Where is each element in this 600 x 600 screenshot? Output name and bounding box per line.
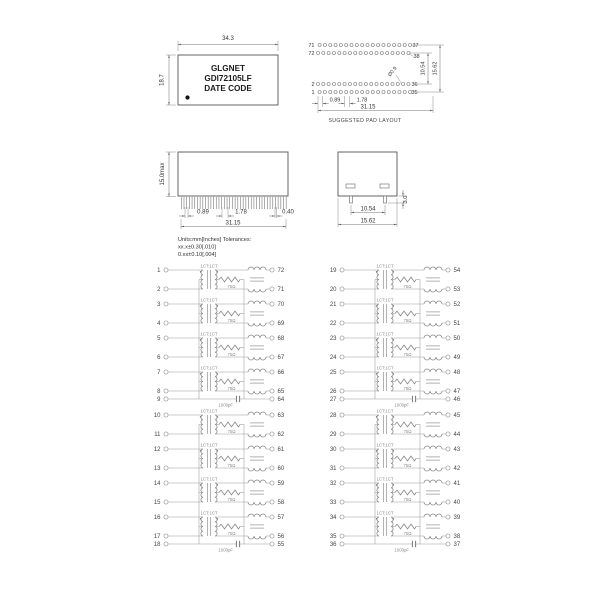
choke-winding — [424, 434, 442, 437]
pad — [398, 43, 401, 46]
pin-circle — [340, 302, 344, 306]
pin-number: 42 — [454, 466, 461, 472]
phase-dot — [200, 271, 202, 273]
pin-number: 45 — [454, 413, 461, 419]
capacitor-value: 1000pF — [218, 548, 233, 553]
pin-number: 15 — [154, 500, 161, 506]
pad — [339, 90, 342, 93]
pin-circle — [340, 370, 344, 374]
phase-dot — [392, 305, 394, 307]
pin-number: 17 — [154, 534, 161, 540]
pin-circle — [446, 542, 450, 546]
resistor — [219, 379, 240, 384]
transformer-ratio-label: 1CT:1CT — [377, 476, 394, 481]
phase-dot — [376, 305, 378, 307]
phase-dot — [392, 339, 394, 341]
brand-text: GLGNET — [211, 64, 245, 73]
pad — [329, 43, 332, 46]
choke-winding — [424, 323, 442, 326]
pin-number: 59 — [278, 481, 285, 487]
choke-winding — [424, 536, 442, 539]
pad — [380, 51, 383, 54]
resistor-value: 75Ω — [228, 531, 237, 536]
pad — [364, 82, 367, 85]
resistor-value: 75Ω — [228, 386, 237, 391]
pin-number: 68 — [278, 336, 285, 342]
pad — [407, 82, 410, 85]
phase-dot — [216, 271, 218, 273]
standoff-foot — [346, 184, 355, 188]
mechanical-drawing: GLGNET GDI72105LF DATE CODE 34.3 18.7 71… — [0, 0, 600, 600]
pin-circle — [446, 432, 450, 436]
choke-winding — [248, 267, 266, 270]
pin-circle — [164, 466, 168, 470]
choke-winding — [248, 335, 266, 338]
resistor-value: 75Ω — [228, 352, 237, 357]
pin-number: 61 — [278, 447, 285, 453]
pin-number: 58 — [278, 500, 285, 506]
pin-number: 28 — [330, 413, 337, 419]
capacitor-value: 1000pF — [394, 548, 409, 553]
pad — [393, 43, 396, 46]
resistor-value: 75Ω — [404, 463, 413, 468]
choke-winding — [424, 480, 442, 483]
pin-number: 12 — [154, 447, 161, 453]
package-outline-view: GLGNET GDI72105LF DATE CODE 34.3 18.7 — [160, 36, 279, 105]
pin-circle — [270, 389, 274, 393]
pad — [387, 90, 390, 93]
choke-winding — [248, 468, 266, 471]
choke-winding — [424, 412, 442, 415]
transformer-ratio-label: 1CT:1CT — [377, 510, 394, 515]
pin-circle — [270, 481, 274, 485]
transformer-ratio-label: 1CT:1CT — [377, 297, 394, 302]
resistor — [395, 456, 416, 461]
pin-number: 38 — [454, 534, 461, 540]
side-pin-hatch — [181, 197, 286, 209]
resistor — [219, 524, 240, 529]
phase-dot — [200, 339, 202, 341]
phase-dot — [376, 518, 378, 520]
phase-dot — [376, 271, 378, 273]
pin-row-dimension: 10.54 — [360, 207, 376, 213]
pad — [377, 43, 380, 46]
phase-dot — [376, 450, 378, 452]
choke-winding — [424, 468, 442, 471]
pad — [348, 51, 351, 54]
pin-number: 13 — [154, 466, 161, 472]
phase-dot — [376, 339, 378, 341]
transformer-ratio-label: 1CT:1CT — [377, 442, 394, 447]
pin-number: 10 — [154, 413, 161, 419]
choke-winding — [248, 502, 266, 505]
transformer-ratio-label: 1CT:1CT — [377, 408, 394, 413]
pin-number: 46 — [454, 397, 461, 403]
pin-circle — [340, 447, 344, 451]
pin-circle — [446, 287, 450, 291]
pin-width-dimension: 0.40 — [282, 210, 294, 216]
choke-winding — [248, 480, 266, 483]
note-line: 0.xx±0.10[.004] — [178, 252, 217, 258]
pad — [316, 51, 319, 54]
part-number-text: GDI72105LF — [204, 74, 251, 83]
resistor-value: 75Ω — [228, 318, 237, 323]
pad — [345, 90, 348, 93]
pad — [375, 82, 378, 85]
pad — [361, 43, 364, 46]
pad — [327, 51, 330, 54]
schematic-block-right: 1CT:1CT75Ω192054531CT:1CT75Ω212252511CT:… — [330, 263, 461, 552]
pin-number: 8 — [157, 389, 161, 395]
pin-circle — [164, 370, 168, 374]
resistor — [395, 524, 416, 529]
pin-number: 54 — [454, 268, 461, 274]
pin-circle — [270, 397, 274, 401]
pin-circle — [164, 321, 168, 325]
pad — [370, 51, 373, 54]
pad — [377, 90, 380, 93]
pin-number: 23 — [330, 336, 337, 342]
pin-circle — [270, 355, 274, 359]
pin-circle — [164, 302, 168, 306]
pin-number: 51 — [454, 321, 461, 327]
resistor-value: 75Ω — [228, 497, 237, 502]
phase-dot — [216, 450, 218, 452]
pad — [339, 43, 342, 46]
capacitor-value: 1000pF — [394, 403, 409, 408]
pin-circle — [164, 355, 168, 359]
pin-circle — [270, 370, 274, 374]
pad — [359, 51, 362, 54]
pad — [323, 90, 326, 93]
phase-dot — [200, 373, 202, 375]
choke-winding — [248, 536, 266, 539]
note-line: xx.x±0.30[.010] — [178, 245, 216, 251]
pad — [408, 43, 411, 46]
resistor — [395, 277, 416, 282]
pad — [396, 51, 399, 54]
pin-number: 7 — [157, 370, 161, 376]
pin-number: 36 — [330, 542, 337, 548]
pin-circle — [270, 413, 274, 417]
pin-number: 33 — [330, 500, 337, 506]
schematic: 1CT:1CT75Ω1272711CT:1CT75Ω3470691CT:1CT7… — [154, 263, 461, 552]
resistor — [219, 345, 240, 350]
pin-number: 55 — [278, 542, 285, 548]
pin-circle — [164, 287, 168, 291]
pad — [355, 43, 358, 46]
pin-number: 49 — [454, 355, 461, 361]
pad-pitch-dimension: 1.78 — [357, 98, 368, 104]
pin-circle — [340, 534, 344, 538]
pin-circle — [164, 534, 168, 538]
pad — [398, 90, 401, 93]
datasheet-page: GLGNET GDI72105LF DATE CODE 34.3 18.7 71… — [0, 0, 600, 600]
choke-winding — [248, 514, 266, 517]
pin-number: 9 — [157, 397, 161, 403]
pin-number: 26 — [330, 389, 337, 395]
note-line: Units:mm[Inches] Tolerances: — [178, 237, 252, 243]
drawing-element — [396, 75, 402, 84]
height-dimension: 18.7 — [160, 74, 166, 86]
pad — [354, 82, 357, 85]
pin1-marker-dot — [185, 95, 189, 99]
pad — [403, 90, 406, 93]
pin-circle — [340, 389, 344, 393]
phase-dot — [200, 450, 202, 452]
resistor — [395, 311, 416, 316]
pin-number: 18 — [154, 542, 161, 548]
pad — [391, 82, 394, 85]
pin-number: 21 — [330, 302, 337, 308]
pad — [345, 43, 348, 46]
transformer-ratio-label: 1CT:1CT — [377, 365, 394, 370]
pin-number: 19 — [330, 268, 337, 274]
pin-number: 14 — [154, 481, 161, 487]
pin-circle — [446, 500, 450, 504]
pad — [343, 51, 346, 54]
schematic-block-left: 1CT:1CT75Ω1272711CT:1CT75Ω3470691CT:1CT7… — [154, 263, 285, 552]
pin-number: 20 — [330, 287, 337, 293]
pin-label: 71 — [308, 43, 314, 49]
pad — [350, 90, 353, 93]
phase-dot — [200, 484, 202, 486]
transformer-ratio-label: 1CT:1CT — [201, 476, 218, 481]
pad — [338, 51, 341, 54]
pin-circle — [164, 481, 168, 485]
pin-circle — [270, 466, 274, 470]
pin-circle — [270, 534, 274, 538]
pad — [318, 43, 321, 46]
choke-winding — [248, 289, 266, 292]
pad — [332, 82, 335, 85]
pin-circle — [164, 500, 168, 504]
pin-circle — [164, 389, 168, 393]
choke-winding — [424, 267, 442, 270]
pin-circle — [164, 542, 168, 546]
resistor-value: 75Ω — [404, 352, 413, 357]
phase-dot — [392, 271, 394, 273]
pad — [402, 82, 405, 85]
pin-number: 1 — [157, 268, 161, 274]
pin-number: 57 — [278, 515, 285, 521]
pad — [371, 90, 374, 93]
pad-offset-dimension: 0.89 — [330, 98, 341, 104]
resistor-value: 75Ω — [404, 318, 413, 323]
pin-circle — [270, 500, 274, 504]
pin-number: 41 — [454, 481, 461, 487]
choke-winding — [248, 301, 266, 304]
pin-label: 37 — [413, 43, 419, 49]
pin-label: 1 — [311, 90, 314, 96]
choke-winding — [424, 391, 442, 394]
pin-circle — [340, 542, 344, 546]
pin-number: 5 — [157, 336, 161, 342]
pin-label: 36 — [412, 82, 418, 88]
pin-number: 32 — [330, 481, 337, 487]
pin-circle — [446, 534, 450, 538]
rows-outer-dimension: 15.62 — [433, 62, 439, 76]
pin-number: 2 — [157, 287, 161, 293]
pin-circle — [164, 413, 168, 417]
pad-array — [316, 43, 411, 93]
phase-dot — [392, 416, 394, 418]
transformer-ratio-label: 1CT:1CT — [201, 331, 218, 336]
pad — [338, 82, 341, 85]
resistor — [395, 345, 416, 350]
pin-circle — [340, 481, 344, 485]
resistor — [219, 456, 240, 461]
pin-number: 72 — [278, 268, 285, 274]
pin-number: 48 — [454, 370, 461, 376]
phase-dot — [376, 416, 378, 418]
pad — [354, 51, 357, 54]
pin-number: 31 — [330, 466, 337, 472]
pin-number: 39 — [454, 515, 461, 521]
pad — [327, 82, 330, 85]
pad — [403, 43, 406, 46]
resistor-value: 75Ω — [228, 463, 237, 468]
choke-winding — [424, 289, 442, 292]
pin-circle — [270, 287, 274, 291]
pin-circle — [164, 447, 168, 451]
pin-circle — [164, 268, 168, 272]
pin-number: 4 — [157, 321, 161, 327]
standoff-foot — [380, 184, 389, 188]
pad-layout-view: 71 72 2 1 37 38 36 35 Ø0.9 0.89 1.78 31.… — [308, 43, 444, 124]
pin-number: 67 — [278, 355, 285, 361]
choke-winding — [424, 502, 442, 505]
capacitor-value: 1000pF — [218, 403, 233, 408]
end-pin — [350, 196, 353, 203]
pin-number: 70 — [278, 302, 285, 308]
pin-circle — [340, 355, 344, 359]
resistor-value: 75Ω — [404, 284, 413, 289]
pad — [355, 90, 358, 93]
resistor-value: 75Ω — [404, 386, 413, 391]
pin-number: 24 — [330, 355, 337, 361]
pin-circle — [340, 500, 344, 504]
pin-circle — [270, 336, 274, 340]
choke-winding — [424, 446, 442, 449]
choke-winding — [424, 335, 442, 338]
pin-number: 37 — [454, 542, 461, 548]
pad — [402, 51, 405, 54]
pin-circle — [270, 321, 274, 325]
pin-circle — [446, 355, 450, 359]
choke-winding — [248, 434, 266, 437]
width-dimension: 34.3 — [222, 36, 234, 42]
seated-height-dimension: 15.0max — [160, 162, 166, 185]
pad — [334, 43, 337, 46]
transformer-ratio-label: 1CT:1CT — [377, 263, 394, 268]
pin-number: 50 — [454, 336, 461, 342]
pin-number: 60 — [278, 466, 285, 472]
pin-number: 35 — [330, 534, 337, 540]
phase-dot — [392, 373, 394, 375]
pin-number: 43 — [454, 447, 461, 453]
pin-number: 34 — [330, 515, 337, 521]
pin-circle — [446, 268, 450, 272]
phase-dot — [200, 416, 202, 418]
pin-number: 71 — [278, 287, 285, 293]
pad — [387, 43, 390, 46]
pin-circle — [270, 515, 274, 519]
choke-winding — [424, 301, 442, 304]
choke-winding — [424, 514, 442, 517]
pin-number: 44 — [454, 432, 461, 438]
pad — [370, 82, 373, 85]
pin-circle — [270, 542, 274, 546]
pin-number: 64 — [278, 397, 285, 403]
pin-number: 69 — [278, 321, 285, 327]
resistor-value: 75Ω — [228, 284, 237, 289]
transformer-ratio-label: 1CT:1CT — [201, 297, 218, 302]
pin-circle — [446, 336, 450, 340]
pin-number: 16 — [154, 515, 161, 521]
phase-dot — [216, 373, 218, 375]
pin-circle — [164, 515, 168, 519]
date-code-text: DATE CODE — [204, 84, 252, 93]
transformer-ratio-label: 1CT:1CT — [377, 331, 394, 336]
pin-circle — [340, 432, 344, 436]
pin-number: 53 — [454, 287, 461, 293]
pin-number: 40 — [454, 500, 461, 506]
pad — [366, 43, 369, 46]
phase-dot — [216, 484, 218, 486]
pin-circle — [270, 302, 274, 306]
pin-circle — [446, 447, 450, 451]
pad — [364, 51, 367, 54]
pad — [329, 90, 332, 93]
pin-circle — [340, 287, 344, 291]
resistor-value: 75Ω — [404, 429, 413, 434]
pin-circle — [270, 432, 274, 436]
pin-circle — [340, 413, 344, 417]
pin-circle — [164, 336, 168, 340]
pad — [350, 43, 353, 46]
pin-number: 22 — [330, 321, 337, 327]
choke-winding — [248, 323, 266, 326]
phase-dot — [392, 450, 394, 452]
pin-number: 52 — [454, 302, 461, 308]
pad — [359, 82, 362, 85]
pad — [343, 82, 346, 85]
pin-number: 27 — [330, 397, 337, 403]
pin-circle — [340, 397, 344, 401]
end-view: 3.0 10.54 15.62 — [338, 152, 409, 227]
pad — [332, 51, 335, 54]
phase-dot — [392, 518, 394, 520]
pin-number: 47 — [454, 389, 461, 395]
pin-circle — [446, 302, 450, 306]
pad — [396, 82, 399, 85]
resistor — [219, 311, 240, 316]
pin-number: 62 — [278, 432, 285, 438]
choke-winding — [248, 357, 266, 360]
end-body — [338, 152, 397, 196]
pin-number: 29 — [330, 432, 337, 438]
pin-circle — [164, 397, 168, 401]
transformer-ratio-label: 1CT:1CT — [201, 263, 218, 268]
pin-label: 72 — [308, 51, 314, 57]
phase-dot — [216, 416, 218, 418]
choke-winding — [248, 391, 266, 394]
pad — [371, 43, 374, 46]
pin-circle — [446, 413, 450, 417]
pin-number: 56 — [278, 534, 285, 540]
pin-label: 38 — [414, 54, 420, 60]
